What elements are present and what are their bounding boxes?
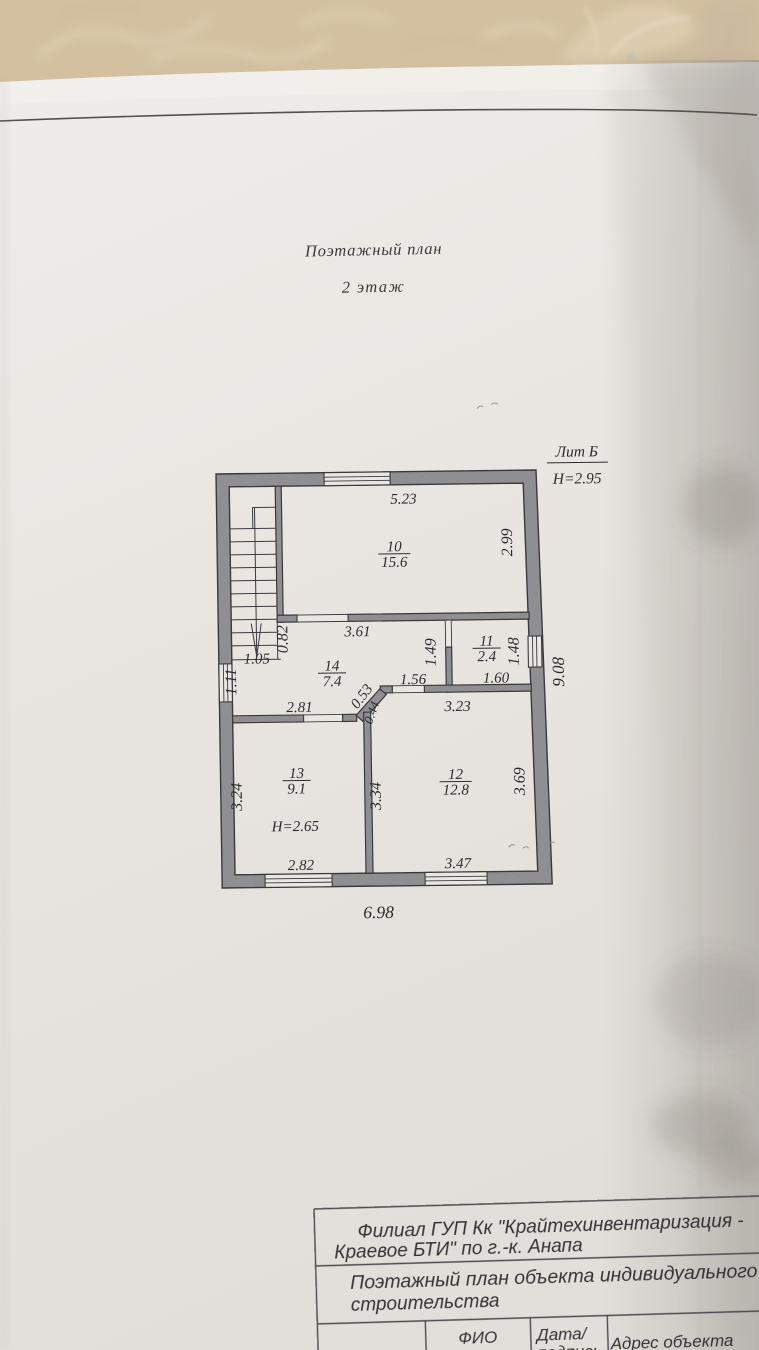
svg-text:строительства: строительства	[351, 1291, 500, 1316]
svg-text:Н=2.65: Н=2.65	[271, 819, 320, 836]
svg-text:1.60: 1.60	[483, 670, 510, 686]
svg-text:2.99: 2.99	[499, 528, 516, 556]
svg-text:5.23: 5.23	[390, 491, 416, 507]
svg-text:13: 13	[289, 766, 304, 782]
svg-text:6.98: 6.98	[363, 902, 394, 922]
svg-text:Лит Б: Лит Б	[554, 443, 598, 461]
svg-text:2.4: 2.4	[477, 649, 496, 665]
svg-text:7.4: 7.4	[323, 674, 342, 690]
svg-text:9.08: 9.08	[549, 656, 568, 686]
svg-text:3.61: 3.61	[343, 624, 370, 640]
svg-text:14: 14	[324, 658, 340, 674]
svg-text:9.1: 9.1	[287, 781, 306, 797]
svg-text:10: 10	[387, 539, 403, 555]
svg-text:2 этаж: 2 этаж	[342, 277, 405, 297]
svg-text:3.69: 3.69	[511, 767, 528, 796]
svg-text:1.11: 1.11	[223, 668, 240, 695]
svg-text:подпись: подпись	[537, 1342, 602, 1350]
svg-text:3.23: 3.23	[443, 699, 470, 715]
svg-text:ФИО: ФИО	[458, 1328, 497, 1348]
svg-text:12.8: 12.8	[443, 782, 470, 798]
svg-text:2.81: 2.81	[286, 700, 312, 716]
svg-text:11: 11	[480, 634, 494, 650]
svg-text:Н=2.95: Н=2.95	[552, 470, 602, 488]
svg-text:2.82: 2.82	[288, 858, 315, 874]
svg-text:0.82: 0.82	[274, 625, 291, 653]
svg-text:1.49: 1.49	[423, 638, 440, 666]
svg-text:1.48: 1.48	[506, 637, 523, 665]
svg-text:3.47: 3.47	[444, 856, 473, 872]
svg-text:1.05: 1.05	[244, 651, 271, 667]
svg-text:1.56: 1.56	[400, 672, 427, 688]
svg-text:Адрес объекта: Адрес объекта	[609, 1331, 733, 1350]
svg-text:3.34: 3.34	[368, 782, 385, 811]
svg-text:Поэтажный план: Поэтажный план	[304, 239, 443, 261]
svg-text:12: 12	[448, 767, 464, 783]
svg-text:15.6: 15.6	[381, 555, 408, 571]
svg-text:3.24: 3.24	[229, 783, 246, 812]
